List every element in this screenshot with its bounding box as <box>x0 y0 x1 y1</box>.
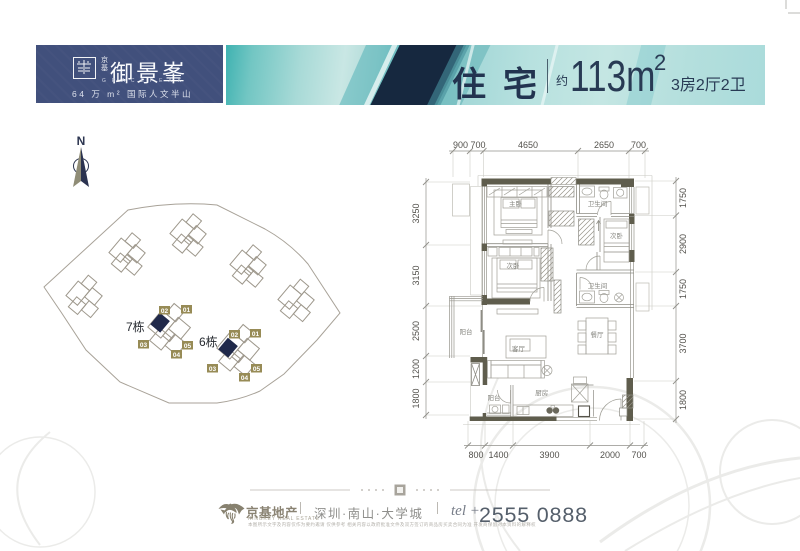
svg-text:700: 700 <box>631 450 646 460</box>
svg-text:3700: 3700 <box>678 333 688 353</box>
svg-text:800: 800 <box>468 450 483 460</box>
svg-text:次卧: 次卧 <box>507 261 521 270</box>
svg-text:主卧: 主卧 <box>509 199 523 208</box>
svg-text:1200: 1200 <box>411 359 421 379</box>
svg-text:1750: 1750 <box>678 279 688 299</box>
svg-text:2500: 2500 <box>411 321 421 341</box>
svg-text:700: 700 <box>470 140 485 150</box>
svg-text:900: 900 <box>453 140 468 150</box>
svg-text:4650: 4650 <box>518 140 538 150</box>
svg-text:2900: 2900 <box>678 234 688 254</box>
svg-text:700: 700 <box>631 140 646 150</box>
svg-text:1400: 1400 <box>488 450 508 460</box>
svg-text:次卧: 次卧 <box>610 231 624 240</box>
svg-text:厨房: 厨房 <box>535 388 548 397</box>
svg-text:3250: 3250 <box>411 203 421 223</box>
svg-text:1800: 1800 <box>678 390 688 410</box>
svg-text:餐厅: 餐厅 <box>591 330 605 339</box>
svg-text:卫生间: 卫生间 <box>588 281 608 290</box>
svg-text:阳台: 阳台 <box>460 327 473 336</box>
svg-text:3150: 3150 <box>411 265 421 285</box>
svg-text:2000: 2000 <box>600 450 620 460</box>
svg-text:3900: 3900 <box>539 450 559 460</box>
svg-text:1750: 1750 <box>678 188 688 208</box>
svg-text:客厅: 客厅 <box>512 344 526 353</box>
svg-text:1800: 1800 <box>411 388 421 408</box>
svg-text:2650: 2650 <box>594 140 614 150</box>
